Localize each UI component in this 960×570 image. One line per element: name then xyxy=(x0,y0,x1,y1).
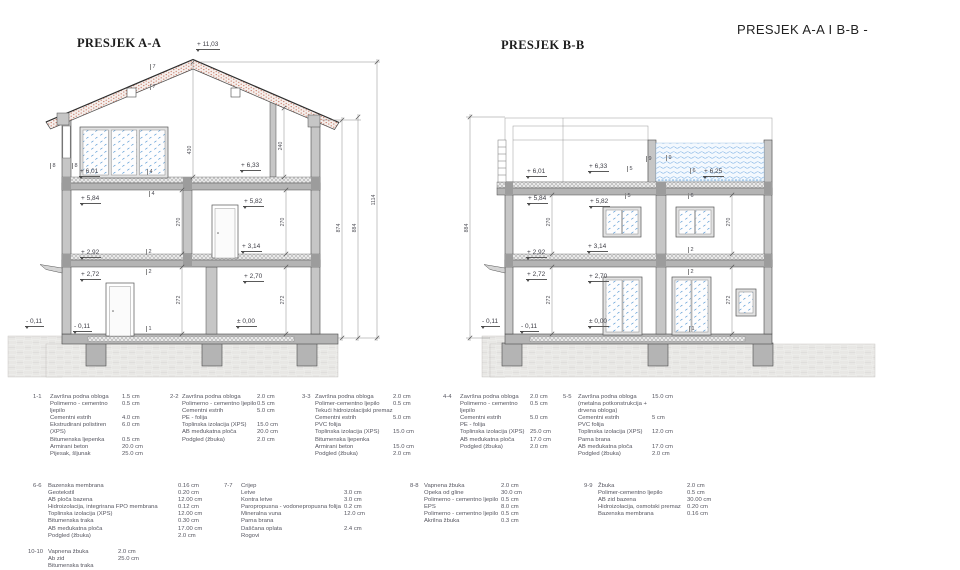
legend-note-id: 6-6 xyxy=(33,483,48,540)
legend-layer-row: Cementni estrih4.0 cm xyxy=(50,415,143,422)
legend-layer-row: Završna podna obloga2.0 cm xyxy=(460,394,551,401)
layer-name: Bitumenska traka xyxy=(48,518,178,525)
layer-name: Završna podna obloga xyxy=(50,394,122,401)
layer-thickness: 20.0 cm xyxy=(122,444,143,451)
ref-number-label: 8 xyxy=(50,163,56,169)
layer-thickness: 2.0 cm xyxy=(393,394,411,401)
layer-thickness: 0.5 cm xyxy=(393,401,411,408)
legend-layer-row: AB međukatna ploča17.0 cm xyxy=(578,444,673,451)
layer-thickness: 17.0 cm xyxy=(530,437,551,444)
layer-thickness: 0.16 cm xyxy=(687,511,708,518)
legend-layer-row: Polimerno - cementno ljepilo0.5 cm xyxy=(182,401,278,408)
legend-layer-row: AB ploča bazena12.00 cm xyxy=(48,497,202,504)
elevation-label: + 2,92 xyxy=(80,249,101,258)
layer-name: Opeka od gline xyxy=(424,490,501,497)
layer-thickness: 0.5 cm xyxy=(501,497,519,504)
legend-layer-row: Polimerno - cementno ljepilo0.5 cm xyxy=(424,511,522,518)
legend-note-id: 8-8 xyxy=(410,483,424,526)
legend-note-layers: Vapnena žbuka2.0 cmOpeka od gline30.0 cm… xyxy=(424,483,522,526)
legend-layer-row: Vapnena žbuka2.0 cm xyxy=(424,483,522,490)
layer-name: Hidroizolacija, integrirana FPO membrana xyxy=(48,504,178,511)
layer-name: Vapnena žbuka xyxy=(424,483,501,490)
layer-name: Armirani beton xyxy=(50,444,122,451)
layer-thickness: 0.12 cm xyxy=(178,504,199,511)
sheet-title: PRESJEK A-A I B-B - xyxy=(737,22,868,37)
layer-thickness: 0.5 cm xyxy=(530,401,548,415)
legend-note-layers: Vapnena žbuka2.0 cmAb zid25.0 cmBitumens… xyxy=(48,549,139,570)
wall-window-left-aa xyxy=(63,126,70,158)
layer-thickness: 17.0 cm xyxy=(652,444,673,451)
legend-layer-row: Mineralna vuna12.0 cm xyxy=(241,511,365,518)
layer-name: Crijep xyxy=(241,483,344,490)
layer-name: Žbuka xyxy=(598,483,687,490)
purlin-right-aa xyxy=(231,88,240,97)
layer-name: Bazenska membrana xyxy=(48,483,178,490)
legend-layer-row: Podgled (žbuka)2.0 cm xyxy=(578,451,673,458)
layer-thickness: 0.20 cm xyxy=(178,490,199,497)
layer-name: Parna brana xyxy=(578,437,652,444)
elevation-label: + 6,25 xyxy=(703,168,724,177)
layer-name: Završna podna obloga xyxy=(182,394,257,401)
legend-layer-row: Polimerno - cementno ljepilo0.5 cm xyxy=(424,497,522,504)
legend-note-layers: Bazenska membrana0.16 cmGeotekstil0.20 c… xyxy=(48,483,202,540)
layer-name: Kontra letve xyxy=(241,497,344,504)
layer-name: Toplinska izolacija (XPS) xyxy=(182,422,257,429)
legend-note-layers: Završna podna obloga15.0 cm(metalna potk… xyxy=(578,394,673,458)
legend-layer-row: Daščana oplata2.4 cm xyxy=(241,526,365,533)
layer-name: Podgled (žbuka) xyxy=(48,533,178,540)
legend-note-8-8: 8-8Vapnena žbuka2.0 cmOpeka od gline30.0… xyxy=(410,483,522,526)
dimension-label: 884 xyxy=(464,224,470,233)
elevation-label: + 6,01 xyxy=(526,168,547,177)
layer-thickness: 2.4 cm xyxy=(344,526,362,533)
elevation-label: + 2,72 xyxy=(80,271,101,280)
elevation-label: - 0,11 xyxy=(520,323,539,332)
elevation-label: + 5,82 xyxy=(589,198,610,207)
ref-number-label: 7 xyxy=(150,64,156,70)
ref-number-label: 6 xyxy=(690,168,696,174)
layer-name: (metalna potkonstrukcija + drvena obloga… xyxy=(578,401,652,415)
layer-name: Geotekstil xyxy=(48,490,178,497)
layer-thickness: 17.00 cm xyxy=(178,526,202,533)
layer-thickness: 5 cm xyxy=(652,415,665,422)
beam xyxy=(764,254,772,267)
layer-name: Bitumenska ljepenka xyxy=(315,437,393,444)
wall-ground-floor-aa xyxy=(206,267,217,334)
ref-number-label: 6 xyxy=(688,193,694,199)
dimension-label: 270 xyxy=(176,218,182,227)
ref-number-label: 4 xyxy=(149,191,155,197)
legend-layer-row: Akrilna žbuka0.3 cm xyxy=(424,518,522,525)
legend-note-id: 5-5 xyxy=(563,394,578,458)
legend-note-id: 3-3 xyxy=(302,394,315,458)
beam xyxy=(62,254,71,267)
ref-number-label: 7 xyxy=(150,84,156,90)
legend-note-id: 1-1 xyxy=(33,394,50,458)
layer-thickness: 20.0 cm xyxy=(257,429,278,436)
legend-layer-row: Bitumenska ljepenka xyxy=(315,437,414,444)
layer-thickness: 0.5 cm xyxy=(501,511,519,518)
dimension-label: 1114 xyxy=(371,195,377,206)
pool-wall-left-bb xyxy=(648,140,656,184)
layer-thickness: 0.5 cm xyxy=(122,437,140,444)
layer-thickness: 0.2 cm xyxy=(344,504,362,511)
legend-layer-row: Pijesak, šljunak25.0 cm xyxy=(50,451,143,458)
layer-name: AB zid bazena xyxy=(598,497,687,504)
legend-layer-row: Podgled (žbuka)2.0 cm xyxy=(48,533,202,540)
window-first-right-bb xyxy=(676,207,714,237)
elevation-label: - 0,11 xyxy=(481,318,500,327)
dimension-label: 270 xyxy=(726,218,732,227)
legend-note-6-6: 6-6Bazenska membrana0.16 cmGeotekstil0.2… xyxy=(33,483,202,540)
elevation-label: + 2,70 xyxy=(588,273,609,282)
ref-number-label: 1 xyxy=(146,326,152,332)
layer-name: Bitumenska ljepenka xyxy=(50,437,122,444)
legend-layer-row: Toplinska izolacija (XPS)12.0 cm xyxy=(578,429,673,436)
layer-thickness: 1.5 cm xyxy=(122,394,140,401)
layer-thickness: 25.0 cm xyxy=(122,451,143,458)
dimension-lines xyxy=(182,59,732,341)
beam xyxy=(311,177,320,190)
legend-note-layers: Završna podna obloga2.0 cmPolimerno - ce… xyxy=(460,394,551,451)
door-first-floor-aa xyxy=(212,205,238,258)
layer-name: Podgled (žbuka) xyxy=(315,451,393,458)
layer-name: Rogovi xyxy=(241,533,344,540)
legend-note-layers: Završna podna obloga2.0 cmPolimerno - ce… xyxy=(182,394,278,444)
layer-thickness: 30.0 cm xyxy=(501,490,522,497)
beam xyxy=(505,182,513,195)
legend-layer-row: Toplinska izolacija (XPS)25.0 cm xyxy=(460,429,551,436)
legend-note-5-5: 5-5Završna podna obloga15.0 cm(metalna p… xyxy=(563,394,673,458)
layer-thickness: 4.0 cm xyxy=(122,415,140,422)
legend-layer-row: Hidroizolacija, osmotski premaz0.20 cm xyxy=(598,504,711,511)
section-aa xyxy=(8,60,339,378)
layer-thickness: 15.0 cm xyxy=(257,422,278,429)
layer-name: AB međukatna ploča xyxy=(48,526,178,533)
legend-layer-row: Podgled (žbuka)2.0 cm xyxy=(460,444,551,451)
legend-layer-row: (metalna potkonstrukcija + drvena obloga… xyxy=(578,401,673,415)
layer-name: Toplinska izolacija (XPS) xyxy=(315,429,393,436)
legend-layer-row: Paropropusna - vodonepropusna folija0.2 … xyxy=(241,504,365,511)
dimension-label: 874 xyxy=(336,224,342,233)
beam xyxy=(505,254,513,267)
layer-name: Završna podna obloga xyxy=(460,394,530,401)
layer-thickness: 5.0 cm xyxy=(393,415,411,422)
legend-note-layers: Završna podna obloga2.0 cmPolimer-cement… xyxy=(315,394,414,458)
legend-note-layers: CrijepLetve3.0 cmKontra letve3.0 cmParop… xyxy=(241,483,365,540)
ref-number-label: 9 xyxy=(646,156,652,162)
layer-name: Polimerno - cementno ljepilo xyxy=(424,511,501,518)
dimension-label: 272 xyxy=(280,296,286,305)
beam xyxy=(311,254,320,267)
legend-layer-row: Polimerno - cementno ljepilo0.5 cm xyxy=(460,401,551,415)
layer-name: PVC folija xyxy=(578,422,652,429)
layer-name: Vapnena žbuka xyxy=(48,549,118,556)
layer-name: Podgled (žbuka) xyxy=(460,444,530,451)
legend-note-7-7: 7-7CrijepLetve3.0 cmKontra letve3.0 cmPa… xyxy=(224,483,365,540)
legend-layer-row: Cementni estrih5.0 cm xyxy=(315,415,414,422)
layer-name: Ekstrudirani polistiren (XPS) xyxy=(50,422,122,436)
legend-layer-row: Polimer-cementno ljepilo0.5 cm xyxy=(598,490,711,497)
legend-layer-row: Toplinska izolacija (XPS)12.00 cm xyxy=(48,511,202,518)
legend-note-1-1: 1-1Završna podna obloga1.5 cmPolimerno -… xyxy=(33,394,143,458)
ref-number-label: 9 xyxy=(666,155,672,161)
dimension-label: 272 xyxy=(726,296,732,305)
ref-number-label: 2 xyxy=(688,247,694,253)
elevation-label: + 6,01 xyxy=(79,168,100,177)
purlin-left-aa xyxy=(127,88,136,97)
elevation-label: + 6,33 xyxy=(588,163,609,172)
legend-layer-row: Bazenska membrana0.16 cm xyxy=(598,511,711,518)
layer-name: Mineralna vuna xyxy=(241,511,344,518)
legend-layer-row: Bitumenska traka xyxy=(48,563,139,570)
roof-slab-bb xyxy=(497,188,772,195)
window-first-left-bb xyxy=(603,207,641,237)
beam xyxy=(656,182,666,195)
legend-layer-row: AB međukatna ploča17.00 cm xyxy=(48,526,202,533)
legend-layer-row: Završna podna obloga1.5 cm xyxy=(50,394,143,401)
layer-thickness: 2.0 cm xyxy=(178,533,196,540)
layer-name: Tekući hidroizolacijski premaz xyxy=(315,408,393,415)
legend-note-2-2: 2-2Završna podna obloga2.0 cmPolimerno -… xyxy=(170,394,278,444)
layer-name: Polimer-cementno ljepilo xyxy=(315,401,393,408)
legend-layer-row: Cementni estrih5 cm xyxy=(578,415,673,422)
layer-thickness: 0.16 cm xyxy=(178,483,199,490)
layer-name: Cementni estrih xyxy=(50,415,122,422)
layer-name: PE - folija xyxy=(460,422,530,429)
layer-name: AB međukatna ploča xyxy=(460,437,530,444)
layer-name: Hidroizolacija, osmotski premaz xyxy=(598,504,687,511)
legend-note-id: 9-9 xyxy=(584,483,598,518)
layer-thickness: 5.0 cm xyxy=(257,408,275,415)
layer-thickness: 0.30 cm xyxy=(178,518,199,525)
layer-name: Završna podna obloga xyxy=(578,394,652,401)
section-bb-title: PRESJEK B-B xyxy=(501,38,585,53)
layer-thickness: 3.0 cm xyxy=(344,490,362,497)
legend-note-id: 2-2 xyxy=(170,394,182,444)
elevation-label: - 0,11 xyxy=(25,318,44,327)
elevation-label: + 2,92 xyxy=(526,249,547,258)
legend-layer-row: Parna brana xyxy=(578,437,673,444)
layer-name: Letve xyxy=(241,490,344,497)
elevation-label: + 11,03 xyxy=(196,41,220,50)
legend-note-10-10: 10-10Vapnena žbuka2.0 cmAb zid25.0 cmBit… xyxy=(28,549,139,570)
wall-first-floor-aa xyxy=(183,190,192,254)
layer-thickness: 25.0 cm xyxy=(118,556,139,563)
legend-layer-row: Letve3.0 cm xyxy=(241,490,365,497)
door-ground-floor-aa xyxy=(106,283,134,336)
legend-layer-row: Cementni estrih5.0 cm xyxy=(460,415,551,422)
layer-name: PVC folija xyxy=(315,422,393,429)
ground-slab-insulation-aa xyxy=(88,337,294,342)
elevation-label: + 5,84 xyxy=(80,195,101,204)
legend-layer-row: Toplinska izolacija (XPS)15.0 cm xyxy=(315,429,414,436)
layer-thickness: 12.0 cm xyxy=(652,429,673,436)
legend-layer-row: Kontra letve3.0 cm xyxy=(241,497,365,504)
ref-number-label: 2 xyxy=(146,249,152,255)
legend-layer-row: Parna brana xyxy=(241,518,365,525)
layer-name: Akrilna žbuka xyxy=(424,518,501,525)
drawing-sheet: + 11,03+ 6,01+ 6,33+ 5,84+ 5,82+ 3,14+ 2… xyxy=(0,0,960,570)
layer-thickness: 2.0 cm xyxy=(118,549,136,556)
layer-thickness: 30.00 cm xyxy=(687,497,711,504)
wall-right-bb xyxy=(764,140,772,334)
layer-thickness: 6.0 cm xyxy=(122,422,140,436)
legend-note-id: 4-4 xyxy=(443,394,460,451)
canopy-aa xyxy=(40,265,62,274)
elevation-label: ± 0,00 xyxy=(588,318,609,327)
layer-thickness: 2.0 cm xyxy=(652,451,670,458)
legend-layer-row: AB međukatna ploča20.0 cm xyxy=(182,429,278,436)
layer-name: Polimerno - cementno ljepilo xyxy=(182,401,257,408)
legend-layer-row: AB zid bazena30.00 cm xyxy=(598,497,711,504)
legend-layer-row: Bitumenska traka0.30 cm xyxy=(48,518,202,525)
elevation-label: + 5,82 xyxy=(243,198,264,207)
layer-thickness: 8.0 cm xyxy=(501,504,519,511)
layer-name: AB ploča bazena xyxy=(48,497,178,504)
elevation-label: - 0,11 xyxy=(73,323,92,332)
legend-note-4-4: 4-4Završna podna obloga2.0 cmPolimerno -… xyxy=(443,394,551,451)
elevation-label: ± 0,00 xyxy=(236,318,257,327)
wall-attic-aa xyxy=(270,96,276,177)
legend-layer-row: Opeka od gline30.0 cm xyxy=(424,490,522,497)
dimension-label: 272 xyxy=(546,296,552,305)
layer-name: Paropropusna - vodonepropusna folija xyxy=(241,504,344,511)
legend-layer-row: Armirani beton20.0 cm xyxy=(50,444,143,451)
ref-number-label: 4 xyxy=(147,169,153,175)
layer-name: Polimerno - cementno ljepilo xyxy=(50,401,122,415)
ref-number-label: 1 xyxy=(689,326,695,332)
legend-layer-row: PVC folija xyxy=(578,422,673,429)
dimension-label: 240 xyxy=(278,142,284,151)
legend-layer-row: PE - folija xyxy=(182,415,278,422)
layer-name: Cementni estrih xyxy=(182,408,257,415)
elevation-label: + 2,72 xyxy=(526,271,547,280)
legend-layer-row: PE - folija xyxy=(460,422,551,429)
legend-note-layers: Završna podna obloga1.5 cmPolimerno - ce… xyxy=(50,394,143,458)
legend-layer-row: Završna podna obloga2.0 cm xyxy=(315,394,414,401)
legend-note-layers: Žbuka2.0 cmPolimer-cementno ljepilo0.5 c… xyxy=(598,483,711,518)
window-ground-small-bb xyxy=(736,289,756,316)
layer-name: AB međukatna ploča xyxy=(578,444,652,451)
layer-thickness: 12.00 cm xyxy=(178,511,202,518)
layer-thickness: 15.0 cm xyxy=(393,444,414,451)
legend-layer-row: Rogovi xyxy=(241,533,365,540)
layer-thickness: 2.0 cm xyxy=(530,394,548,401)
layer-thickness: 0.20 cm xyxy=(687,504,708,511)
legend-layer-row: Završna podna obloga2.0 cm xyxy=(182,394,278,401)
layer-thickness: 5.0 cm xyxy=(530,415,548,422)
elevation-label: + 3,14 xyxy=(587,243,608,252)
legend-note-id: 10-10 xyxy=(28,549,48,570)
layer-thickness: 0.3 cm xyxy=(501,518,519,525)
layer-thickness: 2.0 cm xyxy=(257,394,275,401)
legend-note-9-9: 9-9Žbuka2.0 cmPolimer-cementno ljepilo0.… xyxy=(584,483,711,518)
terrain-bb xyxy=(490,344,875,377)
legend-layer-row: Polimerno - cementno ljepilo0.5 cm xyxy=(50,401,143,415)
layer-thickness: 15.0 cm xyxy=(652,394,673,401)
legend-layer-row: Geotekstil0.20 cm xyxy=(48,490,202,497)
legend-layer-row: Bazenska membrana0.16 cm xyxy=(48,483,202,490)
section-bb xyxy=(482,118,875,377)
canopy-bb xyxy=(484,265,505,274)
elevation-label: + 6,33 xyxy=(240,162,261,171)
layer-thickness: 0.5 cm xyxy=(687,490,705,497)
layer-name: Cementni estrih xyxy=(315,415,393,422)
roof-aa xyxy=(46,60,339,130)
layer-name: Polimerno - cementno ljepilo xyxy=(460,401,530,415)
layer-name: Polimerno - cementno ljepilo xyxy=(424,497,501,504)
layer-name: AB međukatna ploča xyxy=(182,429,257,436)
layer-thickness: 12.0 cm xyxy=(344,511,365,518)
layer-name: Polimer-cementno ljepilo xyxy=(598,490,687,497)
layer-thickness: 12.00 cm xyxy=(178,497,202,504)
legend-note-id: 7-7 xyxy=(224,483,241,540)
ref-number-label: 2 xyxy=(688,269,694,275)
legend-layer-row: Podgled (žbuka)2.0 cm xyxy=(182,437,278,444)
legend-layer-row: Cementni estrih5.0 cm xyxy=(182,408,278,415)
eave-right-aa xyxy=(308,115,320,127)
layer-thickness: 25.0 cm xyxy=(530,429,551,436)
dimension-label: 270 xyxy=(280,218,286,227)
layer-name: Ab zid xyxy=(48,556,118,563)
layer-thickness: 0.5 cm xyxy=(122,401,140,415)
legend-layer-row: PVC folija xyxy=(315,422,414,429)
dimension-label: 272 xyxy=(176,296,182,305)
ladder-bb xyxy=(498,140,506,182)
layer-thickness: 0.5 cm xyxy=(257,401,275,408)
layer-name: Toplinska izolacija (XPS) xyxy=(578,429,652,436)
ref-number-label: 2 xyxy=(146,269,152,275)
elevation-label: + 5,84 xyxy=(527,195,548,204)
layer-thickness: 2.0 cm xyxy=(687,483,705,490)
layer-name: Završna podna obloga xyxy=(315,394,393,401)
ground-slab-insulation-bb xyxy=(530,337,745,342)
first-slab-bb xyxy=(505,260,772,267)
layer-thickness: 2.0 cm xyxy=(393,451,411,458)
legend-layer-row: AB međukatna ploča17.0 cm xyxy=(460,437,551,444)
layer-thickness: 3.0 cm xyxy=(344,497,362,504)
beam xyxy=(764,182,772,195)
layer-name: Toplinska izolacija (XPS) xyxy=(460,429,530,436)
layer-name: Parna brana xyxy=(241,518,344,525)
layer-name: EPS xyxy=(424,504,501,511)
wall-right-aa xyxy=(311,119,320,334)
ref-number-label: 8 xyxy=(72,163,78,169)
layer-name: PE - folija xyxy=(182,415,257,422)
layer-thickness: 15.0 cm xyxy=(393,429,414,436)
legend-layer-row: Crijep xyxy=(241,483,365,490)
dimension-label: 884 xyxy=(352,224,358,233)
ref-number-label: 5 xyxy=(627,166,633,172)
legend-layer-row: Polimer-cementno ljepilo0.5 cm xyxy=(315,401,414,408)
layer-name: Cementni estrih xyxy=(578,415,652,422)
legend-layer-row: Toplinska izolacija (XPS)15.0 cm xyxy=(182,422,278,429)
layer-name: Daščana oplata xyxy=(241,526,344,533)
layer-thickness: 2.0 cm xyxy=(530,444,548,451)
legend-layer-row: Armirani beton15.0 cm xyxy=(315,444,414,451)
layer-name: Podgled (žbuka) xyxy=(578,451,652,458)
legend-layer-row: Tekući hidroizolacijski premaz xyxy=(315,408,414,415)
elevation-label: + 3,14 xyxy=(241,243,262,252)
layer-name: Bazenska membrana xyxy=(598,511,687,518)
eave-left-aa xyxy=(57,113,69,125)
legend-layer-row: Podgled (žbuka)2.0 cm xyxy=(315,451,414,458)
layer-thickness: 2.0 cm xyxy=(257,437,275,444)
legend-layer-row: Hidroizolacija, integrirana FPO membrana… xyxy=(48,504,202,511)
section-aa-title: PRESJEK A-A xyxy=(77,36,161,51)
elevation-label: + 2,70 xyxy=(243,273,264,282)
